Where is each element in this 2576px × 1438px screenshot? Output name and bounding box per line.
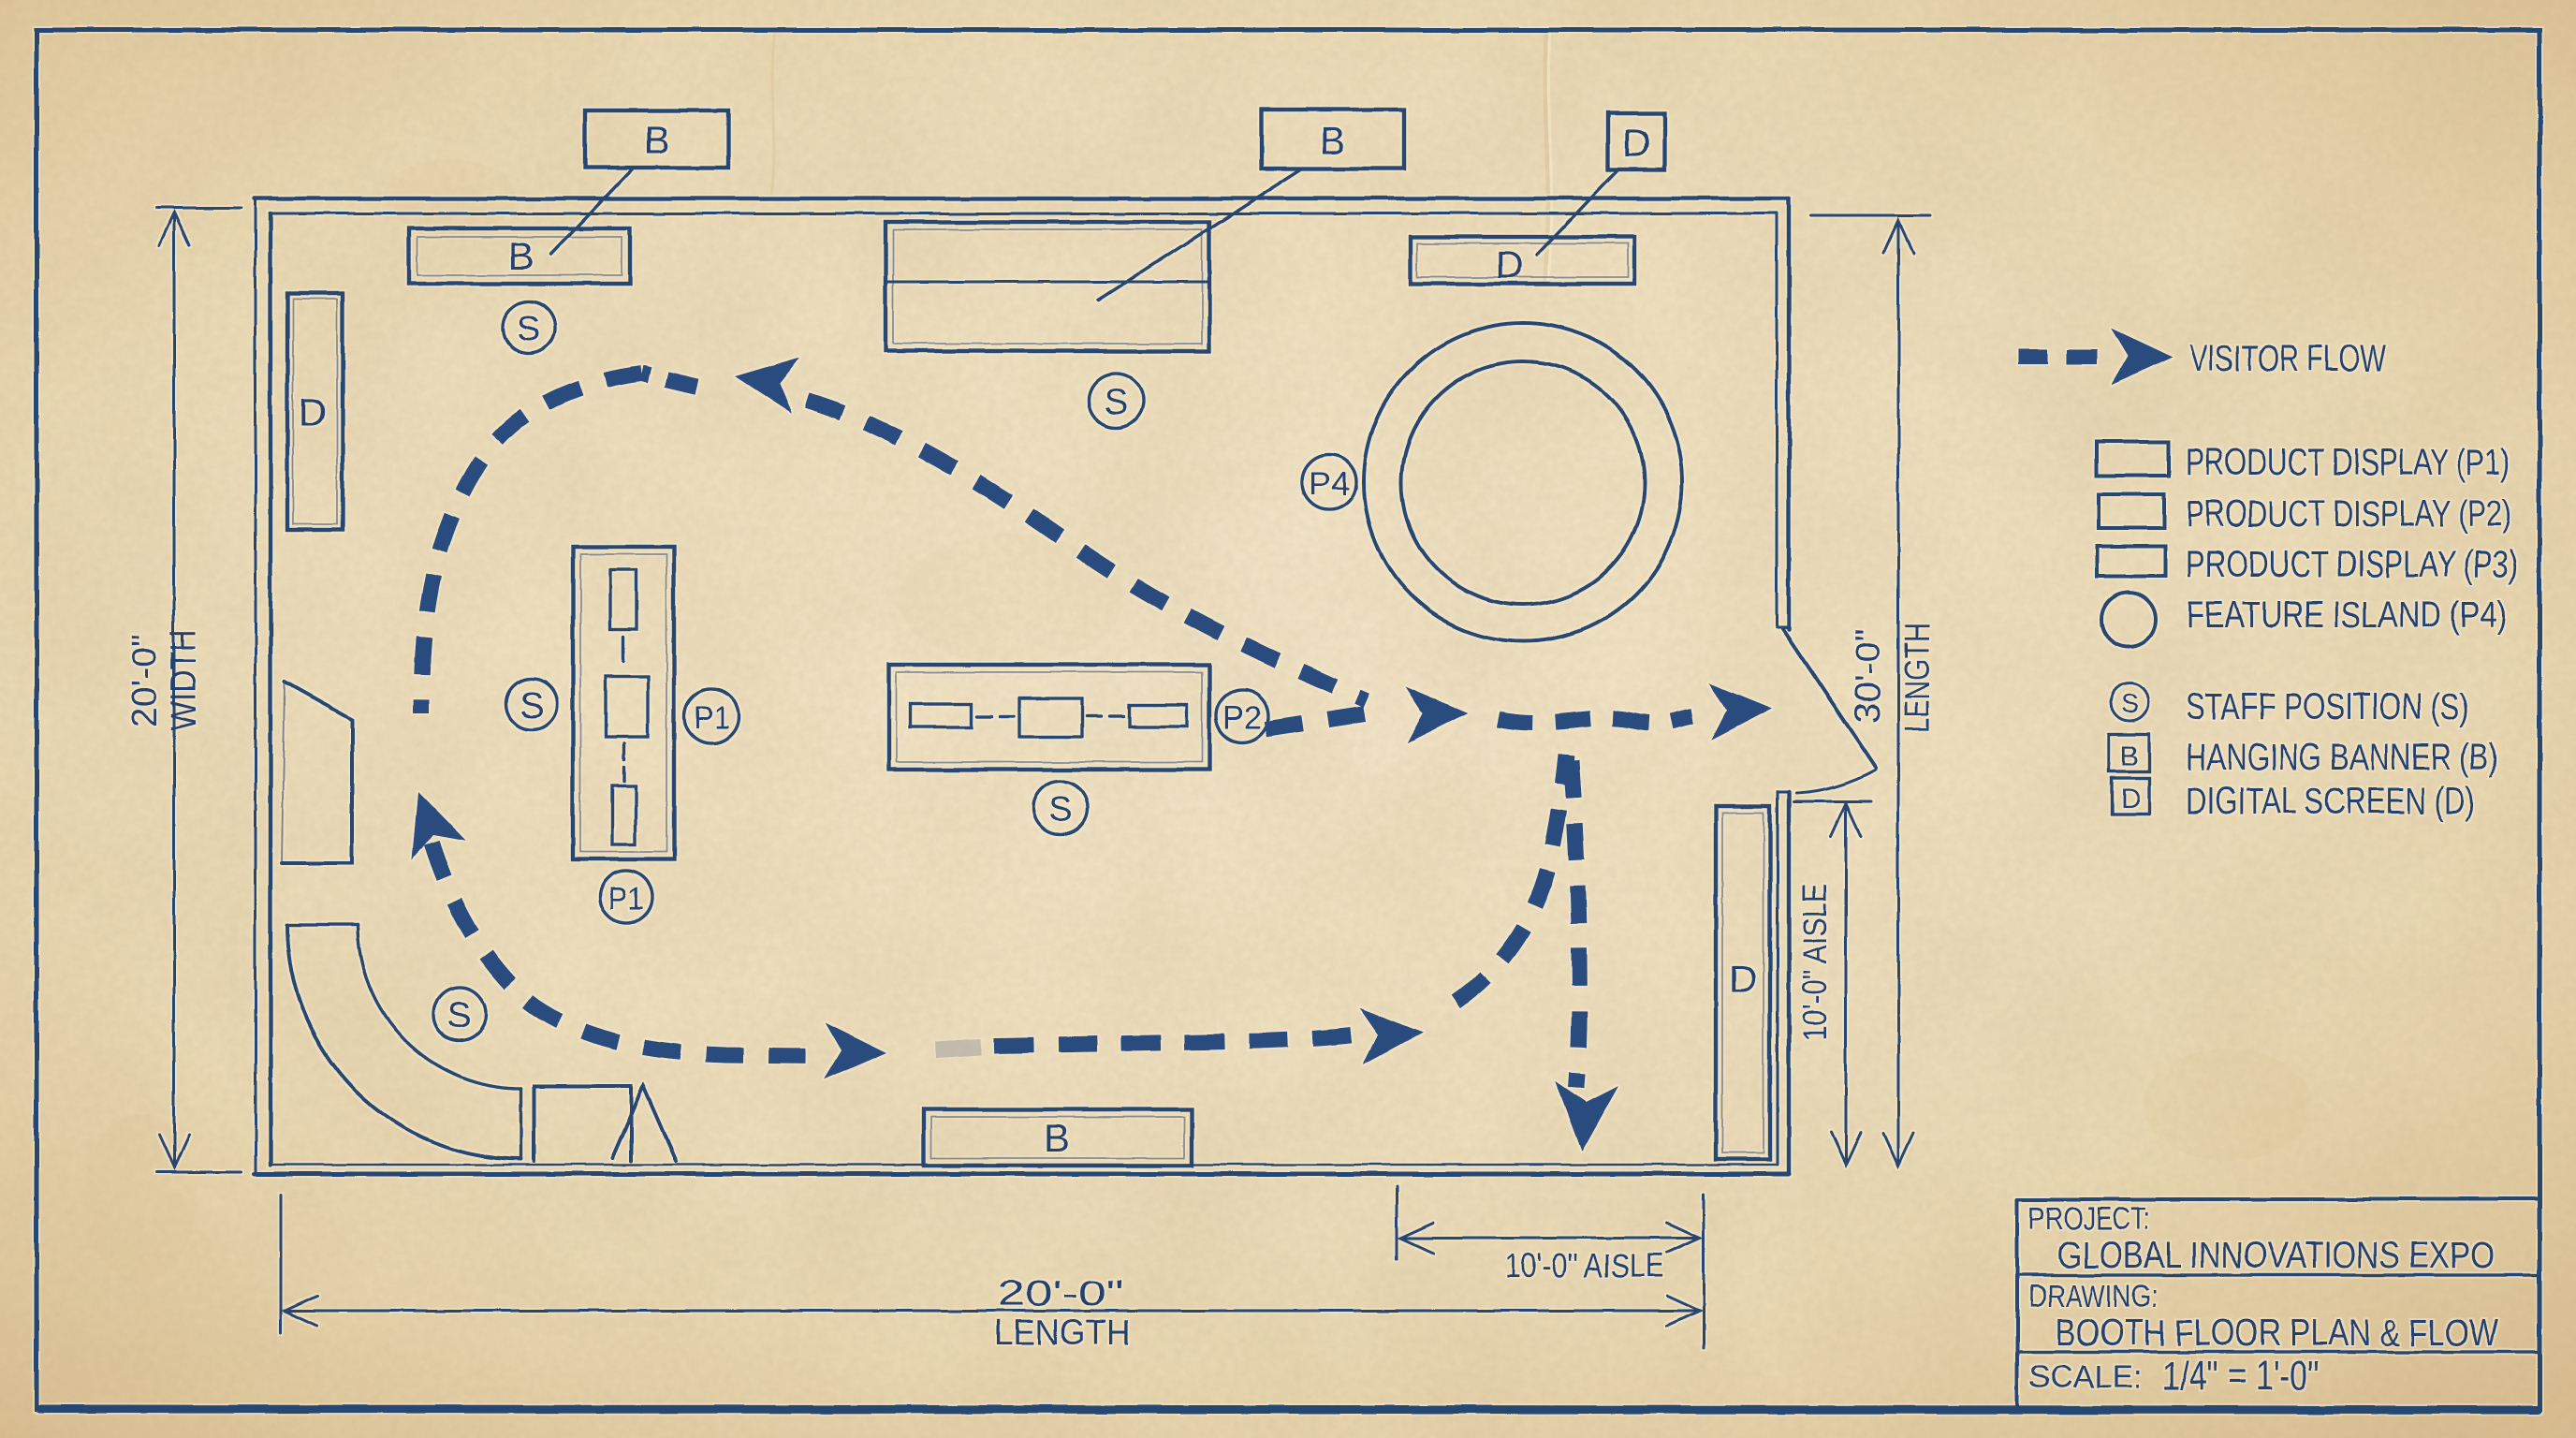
svg-text:DIGITAL SCREEN (D): DIGITAL SCREEN (D)	[2186, 781, 2475, 822]
svg-text:VISITOR FLOW: VISITOR FLOW	[2189, 338, 2386, 379]
svg-text:LENGTH: LENGTH	[1898, 623, 1938, 733]
svg-text:D: D	[1495, 242, 1523, 286]
svg-text:P2: P2	[1222, 700, 1262, 736]
svg-text:WIDTH: WIDTH	[165, 629, 204, 730]
svg-text:B: B	[1320, 118, 1346, 162]
svg-text:GLOBAL INNOVATIONS EXPO: GLOBAL INNOVATIONS EXPO	[2057, 1235, 2495, 1276]
svg-text:S: S	[447, 996, 471, 1035]
svg-text:10'-0" AISLE: 10'-0" AISLE	[1795, 884, 1834, 1041]
svg-text:20'-0": 20'-0"	[998, 1274, 1123, 1313]
svg-text:S: S	[2121, 689, 2139, 718]
svg-text:30'-0": 30'-0"	[1849, 628, 1888, 724]
svg-text:PRODUCT DISPLAY (P3): PRODUCT DISPLAY (P3)	[2186, 544, 2518, 585]
svg-text:B: B	[2120, 741, 2139, 771]
svg-text:20'-0": 20'-0"	[125, 634, 165, 727]
svg-text:S: S	[520, 686, 543, 726]
svg-text:B: B	[644, 118, 670, 162]
svg-text:BOOTH FLOOR PLAN & FLOW: BOOTH FLOOR PLAN & FLOW	[2056, 1313, 2498, 1354]
svg-text:D: D	[2120, 784, 2141, 814]
svg-text:PRODUCT DISPLAY (P1): PRODUCT DISPLAY (P1)	[2186, 442, 2510, 483]
svg-text:P4: P4	[1309, 466, 1350, 502]
svg-text:S: S	[1048, 790, 1072, 829]
svg-text:PRODUCT DISPLAY (P2): PRODUCT DISPLAY (P2)	[2186, 493, 2511, 535]
svg-text:HANGING BANNER (B): HANGING BANNER (B)	[2186, 737, 2498, 778]
svg-text:PROJECT:: PROJECT:	[2028, 1201, 2150, 1237]
svg-text:LENGTH: LENGTH	[994, 1313, 1131, 1353]
svg-text:B: B	[1044, 1116, 1070, 1160]
svg-text:P1: P1	[608, 881, 644, 917]
svg-text:FEATURE ISLAND (P4): FEATURE ISLAND (P4)	[2186, 594, 2507, 636]
svg-text:S: S	[1104, 383, 1127, 422]
svg-text:D: D	[1622, 121, 1650, 165]
svg-text:D: D	[299, 389, 327, 433]
svg-text:D: D	[1729, 957, 1757, 1001]
svg-text:B: B	[508, 234, 534, 278]
svg-text:10'-0" AISLE: 10'-0" AISLE	[1505, 1246, 1664, 1284]
svg-text:DRAWING:: DRAWING:	[2028, 1279, 2158, 1314]
svg-text:SCALE:: SCALE:	[2028, 1359, 2143, 1395]
svg-text:P1: P1	[694, 700, 729, 736]
svg-text:STAFF POSITION (S): STAFF POSITION (S)	[2186, 686, 2469, 727]
svg-text:1/4" = 1'-0": 1/4" = 1'-0"	[2162, 1353, 2320, 1399]
svg-text:S: S	[517, 310, 540, 349]
